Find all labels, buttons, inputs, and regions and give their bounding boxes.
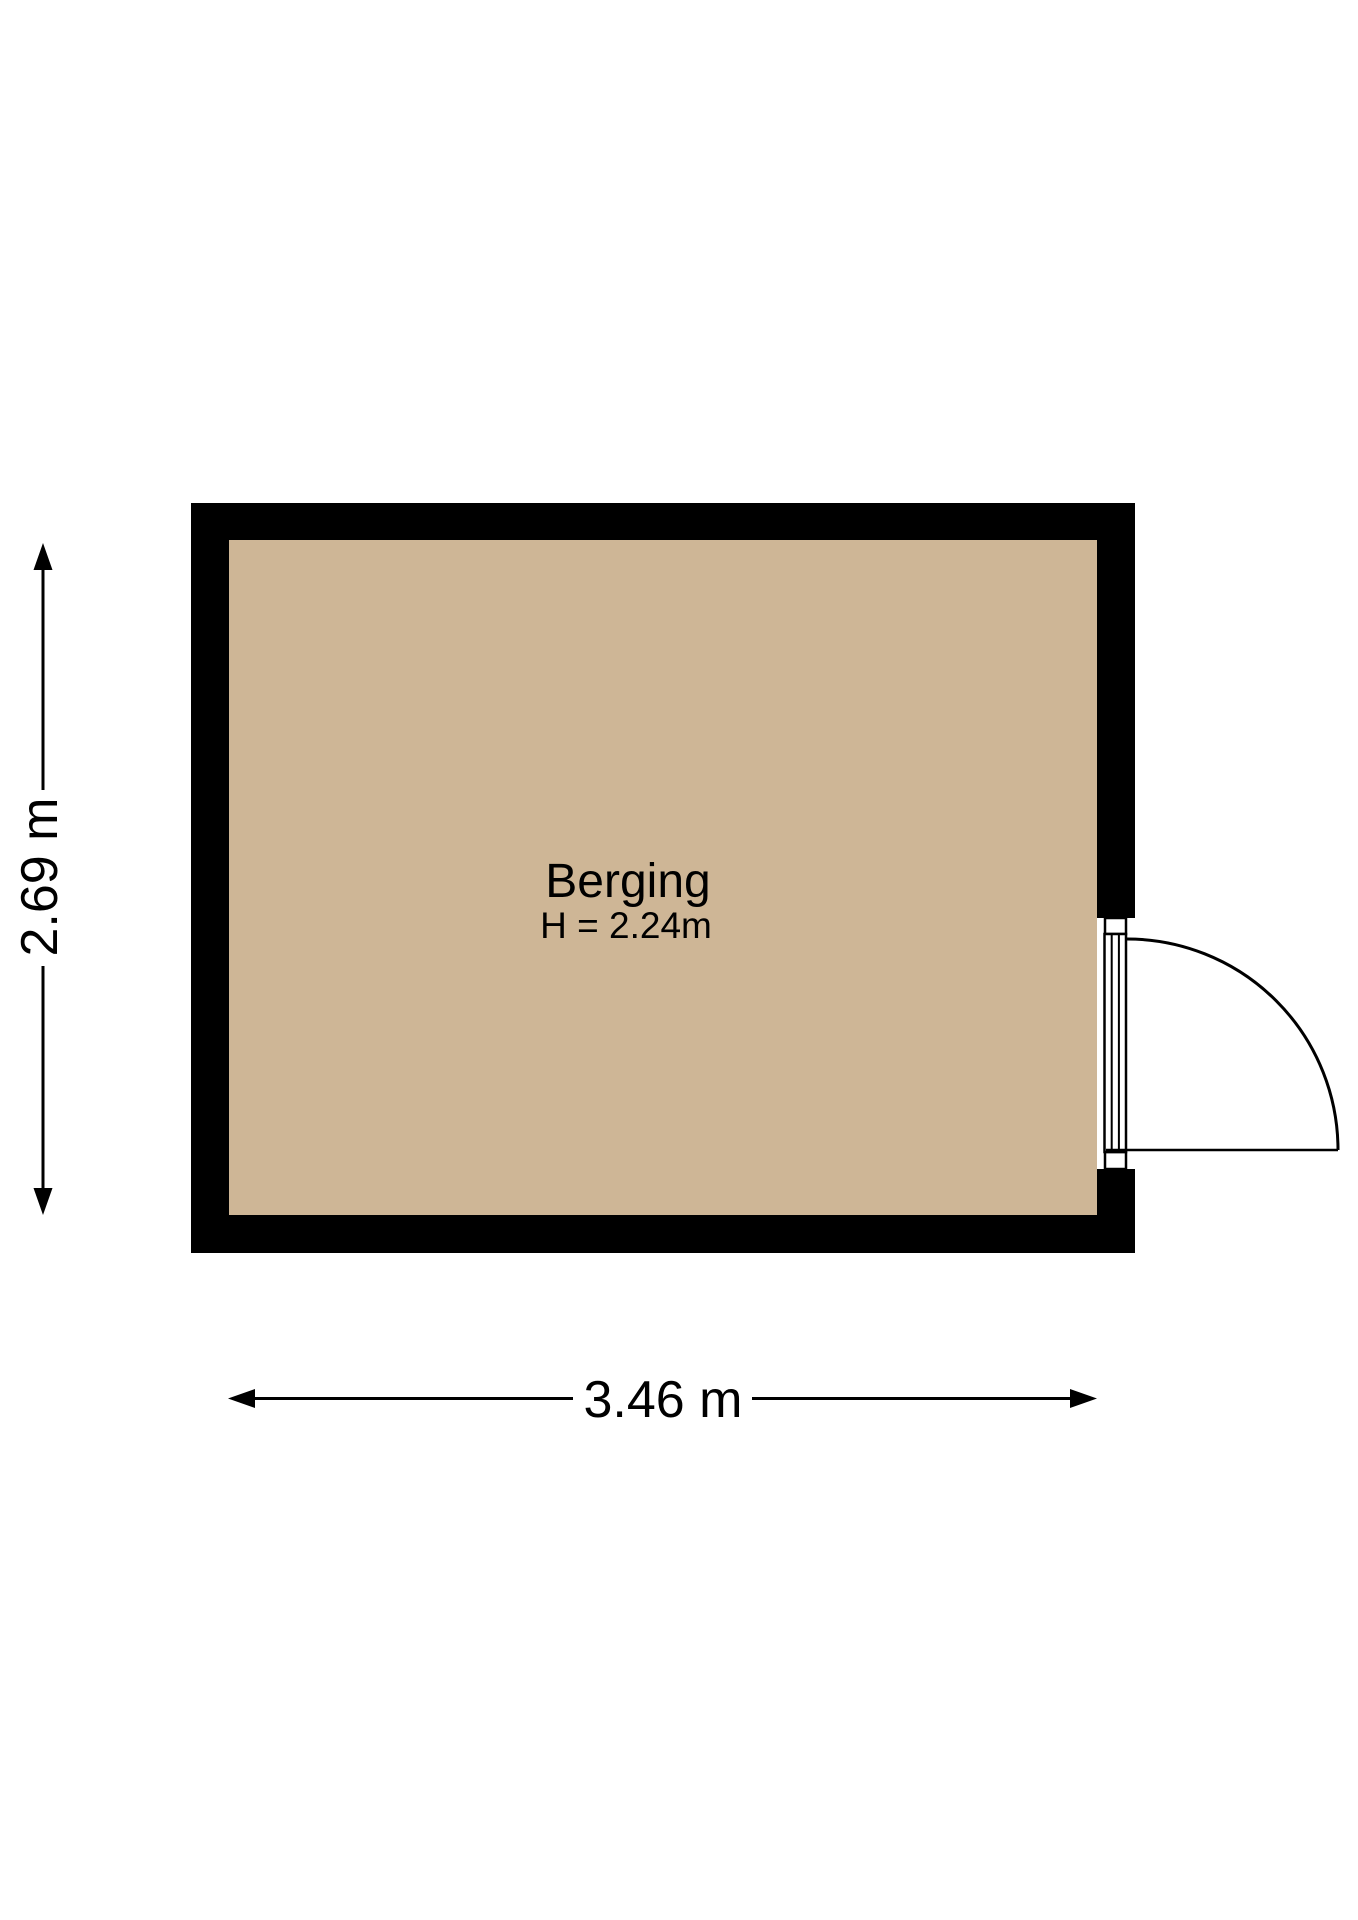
vertical-dimension-label: 2.69 m (11, 798, 69, 957)
door-frame-post-bottom (1105, 1152, 1126, 1169)
arrowhead-down-icon (34, 1188, 53, 1215)
floorplan: 2.69 m 3.46 m Berging H = 2.24m (0, 0, 1358, 1920)
ceiling-height-label: H = 2.24m (540, 905, 712, 946)
arrowhead-right-icon (1070, 1389, 1097, 1408)
room-name-label: Berging (545, 855, 710, 908)
door-slab (1105, 934, 1127, 1152)
door-swing-arc (1127, 939, 1338, 1150)
door-frame-post-top (1105, 918, 1126, 934)
door (1105, 918, 1339, 1169)
floorplan-svg: 2.69 m 3.46 m Berging H = 2.24m (0, 0, 1358, 1920)
arrowhead-left-icon (228, 1389, 255, 1408)
horizontal-dimension-label: 3.46 m (584, 1371, 743, 1429)
arrowhead-up-icon (34, 543, 53, 570)
